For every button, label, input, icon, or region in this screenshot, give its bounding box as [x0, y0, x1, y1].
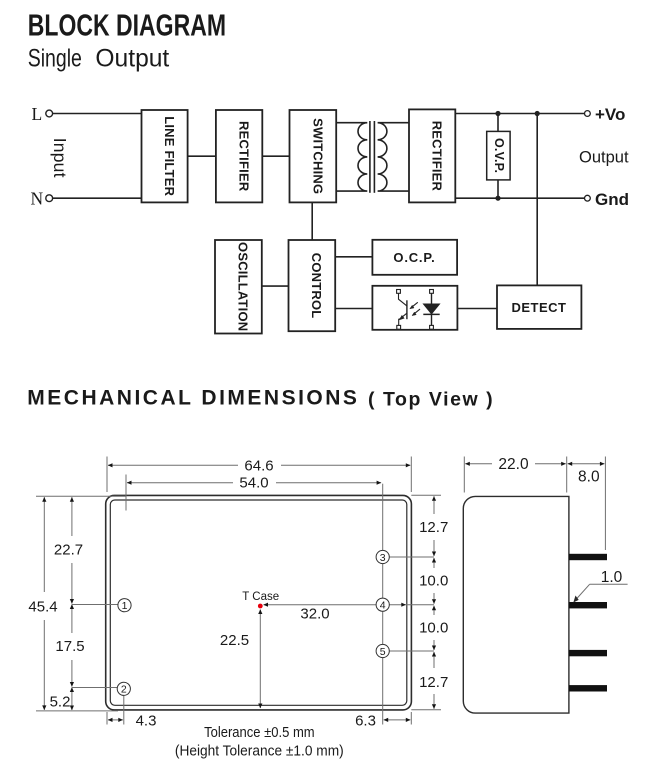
- svg-text:+Vo: +Vo: [595, 105, 625, 124]
- svg-text:10.0: 10.0: [419, 573, 448, 590]
- svg-text:Gnd: Gnd: [595, 190, 629, 209]
- svg-text:Output: Output: [95, 45, 169, 72]
- svg-text:22.5: 22.5: [220, 632, 249, 649]
- svg-text:32.0: 32.0: [300, 606, 329, 623]
- svg-text:45.4: 45.4: [28, 599, 57, 616]
- svg-text:1.0: 1.0: [601, 569, 623, 586]
- svg-text:17.5: 17.5: [55, 638, 84, 655]
- svg-text:6.3: 6.3: [355, 712, 376, 729]
- svg-text:12.7: 12.7: [419, 674, 448, 691]
- svg-text:RECTIFIER: RECTIFIER: [237, 121, 252, 192]
- svg-text:Single: Single: [28, 44, 82, 72]
- svg-text:2: 2: [121, 684, 127, 696]
- svg-text:8.0: 8.0: [578, 469, 600, 486]
- svg-text:N: N: [31, 188, 44, 208]
- svg-text:4: 4: [380, 600, 386, 612]
- svg-text:5: 5: [380, 646, 386, 658]
- svg-text:DETECT: DETECT: [512, 300, 567, 315]
- svg-text:3: 3: [380, 552, 386, 564]
- svg-text:22.0: 22.0: [498, 456, 529, 473]
- svg-text:RECTIFIER: RECTIFIER: [430, 121, 445, 192]
- svg-text:64.6: 64.6: [244, 457, 273, 474]
- svg-text:Tolerance ±0.5 mm: Tolerance ±0.5 mm: [204, 723, 315, 740]
- svg-text:T Case: T Case: [242, 591, 279, 603]
- svg-text:(Height Tolerance ±1.0 mm): (Height Tolerance ±1.0 mm): [175, 743, 344, 760]
- svg-text:4.3: 4.3: [136, 712, 157, 729]
- svg-text:Output: Output: [579, 149, 629, 167]
- svg-text:O.V.P.: O.V.P.: [492, 138, 506, 173]
- svg-text:( Top View ): ( Top View ): [368, 388, 494, 410]
- svg-text:CONTROL: CONTROL: [309, 253, 324, 319]
- svg-text:22.7: 22.7: [54, 542, 83, 559]
- svg-text:SWITCHING: SWITCHING: [310, 118, 325, 194]
- svg-text:OSCILLATION: OSCILLATION: [236, 242, 251, 331]
- svg-text:12.7: 12.7: [419, 519, 448, 536]
- svg-text:MECHANICAL DIMENSIONS: MECHANICAL DIMENSIONS: [27, 386, 359, 409]
- svg-text:O.C.P.: O.C.P.: [393, 250, 435, 265]
- svg-text:Input: Input: [50, 138, 70, 178]
- svg-text:5.2: 5.2: [50, 694, 71, 711]
- svg-text:54.0: 54.0: [239, 475, 268, 492]
- svg-text:L: L: [32, 104, 43, 124]
- svg-text:10.0: 10.0: [419, 620, 448, 637]
- svg-text:LINE FILTER: LINE FILTER: [162, 116, 177, 196]
- svg-text:BLOCK DIAGRAM: BLOCK DIAGRAM: [28, 9, 226, 43]
- svg-text:1: 1: [122, 600, 128, 612]
